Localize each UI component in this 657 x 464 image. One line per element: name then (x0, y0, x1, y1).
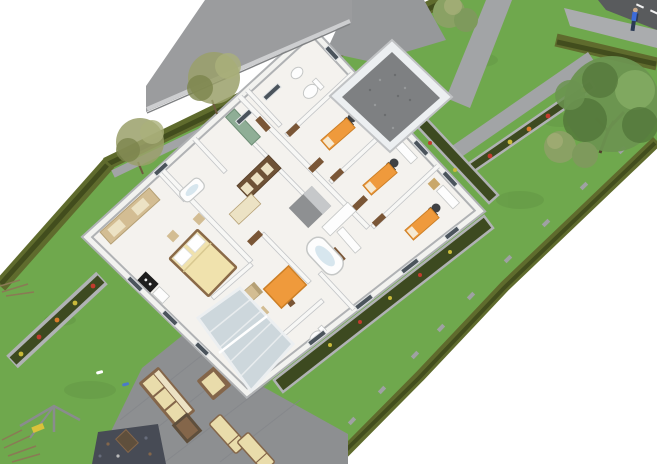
render-viewport (0, 0, 657, 464)
site-plan-render (0, 0, 657, 464)
